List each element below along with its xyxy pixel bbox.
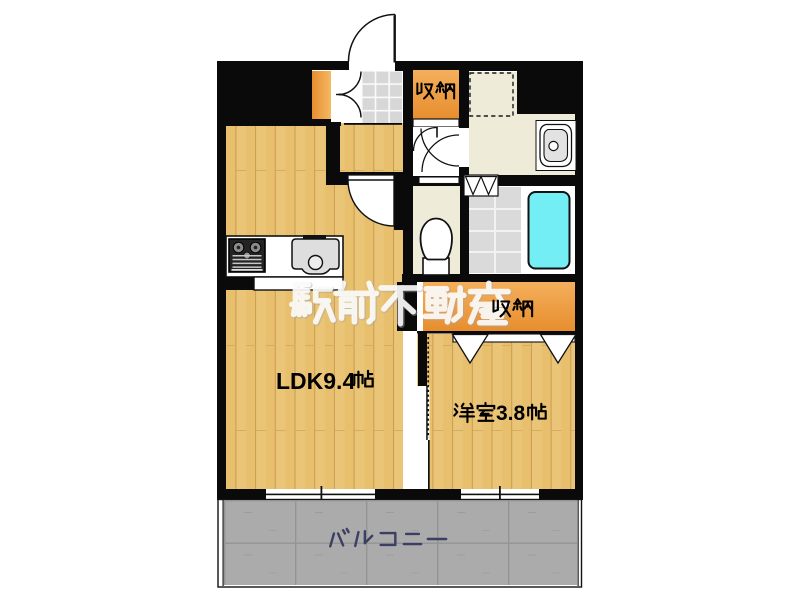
svg-text:LDK9.4: LDK9.4 [276, 368, 355, 394]
svg-text:3.8: 3.8 [496, 402, 526, 425]
